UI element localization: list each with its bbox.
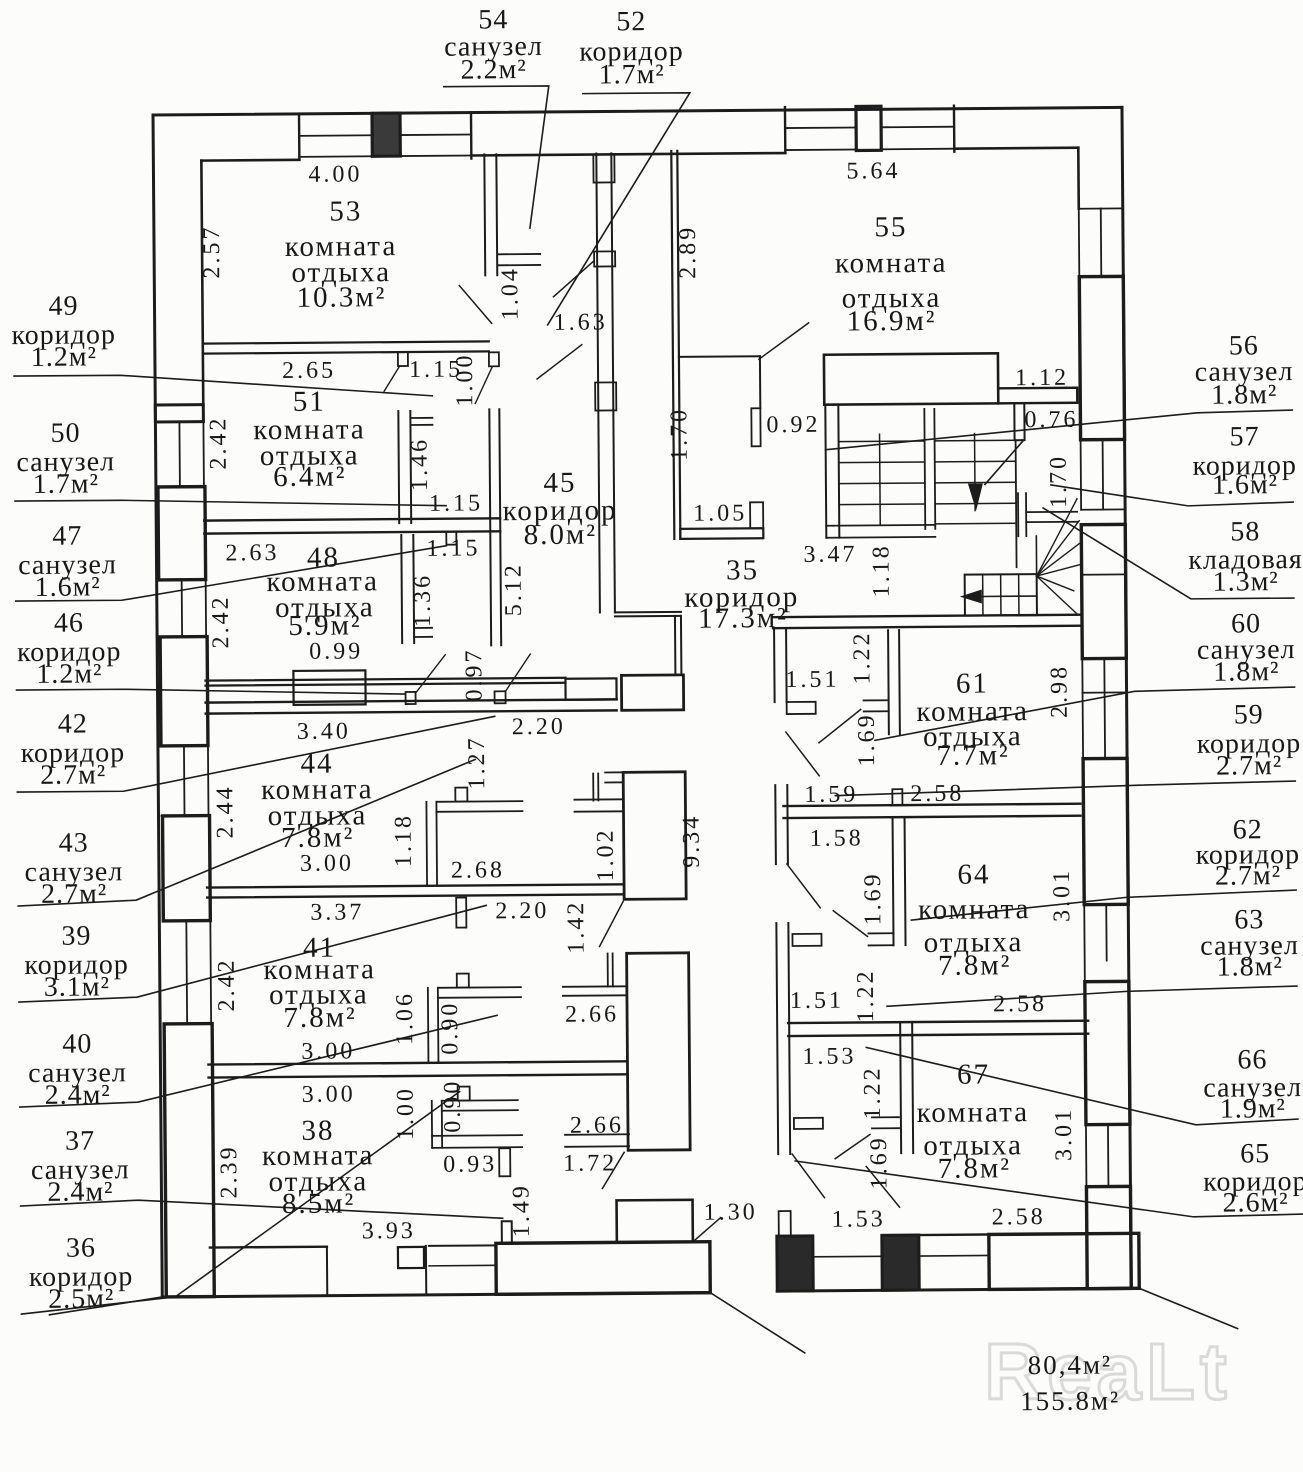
svg-text:1.22: 1.22 [849,630,875,684]
svg-text:1.53: 1.53 [832,1206,886,1232]
svg-text:2.20: 2.20 [512,714,566,740]
svg-text:1.18: 1.18 [390,813,416,867]
svg-text:1.53: 1.53 [802,1044,856,1070]
svg-text:53: 53 [329,195,362,227]
svg-text:1.05: 1.05 [693,500,747,526]
svg-text:3.01: 3.01 [1051,1107,1077,1161]
svg-text:8.0м²: 8.0м² [524,519,598,552]
svg-text:4.00: 4.00 [308,161,362,187]
svg-text:37: 37 [65,1125,95,1156]
svg-text:0.97: 0.97 [461,647,487,701]
svg-text:16.9м²: 16.9м² [847,305,937,338]
svg-text:2.42: 2.42 [214,957,240,1011]
svg-text:2.42: 2.42 [205,415,231,469]
svg-text:3.00: 3.00 [301,1038,355,1064]
svg-text:1.02: 1.02 [593,827,619,881]
svg-text:1.00: 1.00 [393,1086,419,1140]
svg-text:2.44: 2.44 [212,784,238,838]
svg-text:7.8м²: 7.8м² [938,949,1012,982]
svg-text:1.69: 1.69 [866,1135,892,1189]
svg-text:3.1м²: 3.1м² [44,971,110,1003]
svg-text:1.49: 1.49 [508,1183,534,1237]
svg-text:1.51: 1.51 [785,667,839,693]
svg-text:2.4м²: 2.4м² [47,1176,113,1208]
svg-text:3.00: 3.00 [302,1081,356,1107]
svg-text:1.2м²: 1.2м² [31,341,97,373]
svg-text:2.7м²: 2.7м² [1216,750,1282,782]
svg-text:10.3м²: 10.3м² [296,281,386,314]
svg-text:0.90: 0.90 [437,1001,463,1055]
svg-text:1.58: 1.58 [810,825,864,851]
svg-text:39: 39 [61,921,91,952]
svg-text:1.04: 1.04 [497,266,523,320]
svg-text:3.93: 3.93 [362,1218,416,1244]
svg-text:1.69: 1.69 [854,712,880,766]
svg-text:0.76: 0.76 [1024,407,1078,433]
svg-text:43: 43 [59,828,89,859]
svg-text:6.4м²: 6.4м² [273,460,347,493]
svg-text:2.6м²: 2.6м² [1222,1187,1288,1219]
svg-text:9.34: 9.34 [679,814,705,868]
svg-text:0.99: 0.99 [309,638,363,664]
svg-text:8.5м²: 8.5м² [282,1187,356,1220]
svg-text:2.57: 2.57 [199,224,225,278]
svg-text:67: 67 [957,1058,990,1090]
svg-text:57: 57 [1229,421,1259,452]
svg-text:2.7м²: 2.7м² [41,878,107,910]
svg-text:комната: комната [835,247,948,280]
svg-text:1.18: 1.18 [868,543,894,597]
svg-text:комната: комната [918,893,1031,926]
svg-text:1.59: 1.59 [804,781,858,807]
svg-text:36: 36 [66,1232,96,1263]
svg-text:2.58: 2.58 [992,1204,1046,1230]
svg-text:3.01: 3.01 [1049,868,1075,922]
svg-text:66: 66 [1237,1044,1267,1075]
svg-text:1.06: 1.06 [392,991,418,1045]
svg-text:7.8м²: 7.8м² [281,821,355,854]
svg-text:1.46: 1.46 [407,437,433,491]
svg-text:1.27: 1.27 [464,735,490,789]
svg-text:3.37: 3.37 [310,899,364,925]
svg-text:1.00: 1.00 [452,352,478,406]
svg-text:1.7м²: 1.7м² [599,59,665,91]
svg-text:1.72: 1.72 [563,1150,617,1176]
svg-text:50: 50 [50,418,80,449]
svg-text:2.63: 2.63 [225,540,279,566]
svg-text:1.22: 1.22 [853,968,879,1022]
svg-text:3.00: 3.00 [300,850,354,876]
svg-text:1.70: 1.70 [1046,454,1072,508]
svg-text:0.90: 0.90 [440,1079,466,1133]
svg-text:2.89: 2.89 [675,225,701,279]
svg-text:5.12: 5.12 [501,562,527,616]
svg-text:1.42: 1.42 [563,900,589,954]
svg-text:1.51: 1.51 [790,988,844,1014]
svg-text:58: 58 [1230,516,1260,547]
svg-text:65: 65 [1240,1138,1270,1169]
svg-text:46: 46 [54,608,84,639]
svg-text:1.2м²: 1.2м² [36,658,102,690]
svg-text:комната: комната [917,1096,1030,1129]
svg-text:155.8м²: 155.8м² [1020,1385,1120,1416]
svg-text:80,4м²: 80,4м² [1028,1350,1113,1381]
svg-text:0.93: 0.93 [443,1151,497,1177]
svg-text:1.63: 1.63 [554,309,608,335]
svg-text:5.9м²: 5.9м² [288,609,362,642]
svg-text:1.69: 1.69 [860,871,886,925]
svg-text:5.64: 5.64 [846,158,900,184]
svg-text:1.36: 1.36 [410,573,436,627]
svg-text:1.7м²: 1.7м² [33,468,99,500]
svg-text:49: 49 [48,291,78,322]
svg-text:1.6м²: 1.6м² [35,571,101,603]
svg-text:64: 64 [957,858,990,890]
svg-text:2.39: 2.39 [216,1144,242,1198]
svg-text:0.92: 0.92 [766,412,820,438]
svg-text:2.65: 2.65 [282,358,336,384]
svg-text:1.3м²: 1.3м² [1213,566,1279,598]
svg-text:2.4м²: 2.4м² [45,1079,111,1111]
svg-text:2.20: 2.20 [495,898,549,924]
svg-text:7.8м²: 7.8м² [938,1152,1012,1185]
svg-text:1.6м²: 1.6м² [1212,469,1278,501]
svg-text:40: 40 [62,1029,92,1060]
svg-text:2.66: 2.66 [570,1112,624,1138]
svg-text:3.40: 3.40 [297,718,351,744]
svg-text:1.8м²: 1.8м² [1213,656,1279,688]
svg-text:1.22: 1.22 [859,1065,885,1119]
svg-text:2.58: 2.58 [910,781,964,807]
svg-text:59: 59 [1234,699,1264,730]
svg-text:2.68: 2.68 [451,857,505,883]
svg-text:2.66: 2.66 [565,1001,619,1027]
svg-text:1.15: 1.15 [426,535,480,561]
svg-text:2.7м²: 2.7м² [1215,860,1281,892]
svg-text:55: 55 [874,211,907,243]
svg-text:1.70: 1.70 [666,407,692,461]
svg-text:1.8м²: 1.8м² [1211,379,1277,411]
svg-text:2.42: 2.42 [208,594,234,648]
svg-text:1.30: 1.30 [704,1199,758,1225]
svg-text:1.12: 1.12 [1015,365,1069,391]
svg-text:1.15: 1.15 [429,490,483,516]
svg-text:42: 42 [58,709,88,740]
svg-text:2.58: 2.58 [993,991,1047,1017]
svg-text:3.47: 3.47 [803,541,857,567]
svg-text:2.5м²: 2.5м² [48,1283,114,1315]
svg-text:2.7м²: 2.7м² [40,759,106,791]
svg-text:1.8м²: 1.8м² [1217,951,1283,983]
svg-text:2.98: 2.98 [1046,664,1072,718]
svg-text:52: 52 [616,6,646,37]
svg-text:7.7м²: 7.7м² [936,739,1010,772]
svg-text:2.2м²: 2.2м² [460,54,526,86]
svg-text:47: 47 [52,521,82,552]
svg-text:1.9м²: 1.9м² [1220,1093,1286,1125]
svg-text:7.8м²: 7.8м² [283,1001,357,1034]
svg-text:17.3м²: 17.3м² [698,602,788,635]
